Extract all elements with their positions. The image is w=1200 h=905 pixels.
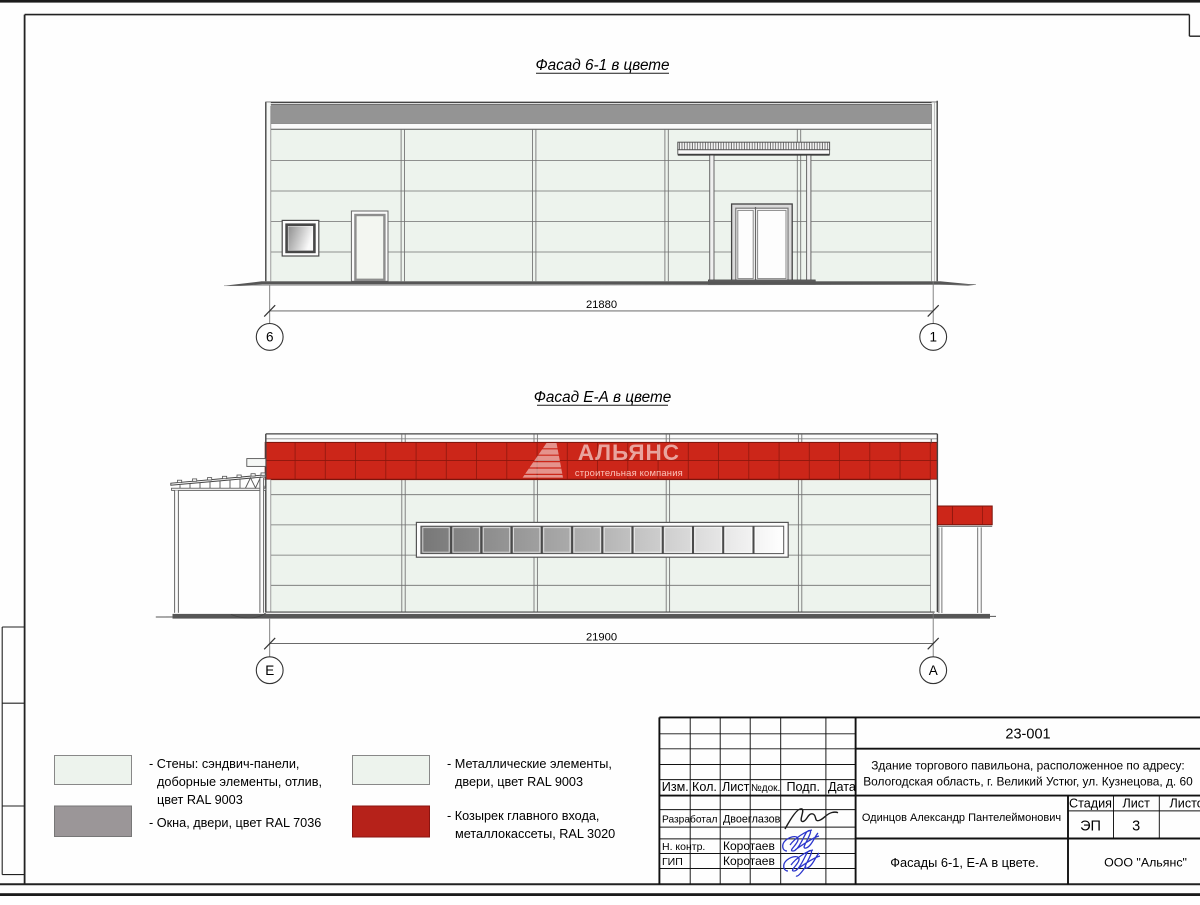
svg-text:двери, цвет RAL 9003: двери, цвет RAL 9003 xyxy=(455,775,583,789)
svg-text:6: 6 xyxy=(266,330,274,345)
svg-text:- Козырек главного входа,: - Козырек главного входа, xyxy=(447,809,599,823)
svg-text:Листов: Листов xyxy=(1170,797,1200,811)
svg-text:А: А xyxy=(929,663,938,678)
svg-text:Стадия: Стадия xyxy=(1069,797,1112,811)
svg-text:Двоеглазов: Двоеглазов xyxy=(723,814,781,826)
svg-text:Лист: Лист xyxy=(722,780,750,794)
svg-text:Вологодская область, г. Велики: Вологодская область, г. Великий Устюг, у… xyxy=(863,775,1193,789)
svg-text:Е: Е xyxy=(265,663,274,678)
svg-text:Фасад 6-1 в цвете: Фасад 6-1 в цвете xyxy=(535,57,669,74)
svg-text:ООО "Альянс": ООО "Альянс" xyxy=(1104,856,1187,870)
svg-text:ЭП: ЭП xyxy=(1080,819,1101,835)
svg-text:Кол.: Кол. xyxy=(692,780,717,794)
svg-text:АЛЬЯНС: АЛЬЯНС xyxy=(578,440,680,465)
svg-text:Разработал: Разработал xyxy=(662,814,718,826)
svg-text:Дата: Дата xyxy=(828,780,856,794)
svg-text:строительная компания: строительная компания xyxy=(575,467,683,478)
svg-text:Подп.: Подп. xyxy=(787,780,820,794)
svg-text:цвет RAL 9003: цвет RAL 9003 xyxy=(157,793,243,807)
svg-text:Лист: Лист xyxy=(1123,797,1151,811)
svg-text:23-001: 23-001 xyxy=(1005,727,1050,743)
svg-text:Фасады 6-1, Е-А в цвете.: Фасады 6-1, Е-А в цвете. xyxy=(890,855,1039,870)
svg-text:1: 1 xyxy=(929,330,937,345)
svg-text:Изм.: Изм. xyxy=(662,780,689,794)
svg-text:Коротаев: Коротаев xyxy=(723,854,775,868)
svg-text:ГИП: ГИП xyxy=(662,856,683,868)
svg-text:- Окна, двери, цвет RAL 7036: - Окна, двери, цвет RAL 7036 xyxy=(149,816,321,830)
svg-text:3: 3 xyxy=(1132,819,1140,835)
svg-text:металлокассеты, RAL 3020: металлокассеты, RAL 3020 xyxy=(455,827,615,841)
svg-text:Одинцов Александр Пантелеймоно: Одинцов Александр Пантелеймонович xyxy=(862,812,1061,824)
svg-text:- Стены: сэндвич-панели,: - Стены: сэндвич-панели, xyxy=(149,757,299,771)
svg-text:21880: 21880 xyxy=(586,299,617,311)
svg-text:Здание торгового павильона, ра: Здание торгового павильона, расположенно… xyxy=(871,759,1185,773)
svg-text:Н. контр.: Н. контр. xyxy=(662,841,705,853)
svg-text:Фасад Е-А в цвете: Фасад Е-А в цвете xyxy=(534,389,672,406)
svg-text:21900: 21900 xyxy=(586,632,617,644)
svg-text:№док.: №док. xyxy=(751,783,780,794)
svg-text:доборные элементы, отлив,: доборные элементы, отлив, xyxy=(157,775,322,789)
svg-text:- Металлические элементы,: - Металлические элементы, xyxy=(447,757,612,771)
svg-text:Коротаев: Коротаев xyxy=(723,839,775,853)
